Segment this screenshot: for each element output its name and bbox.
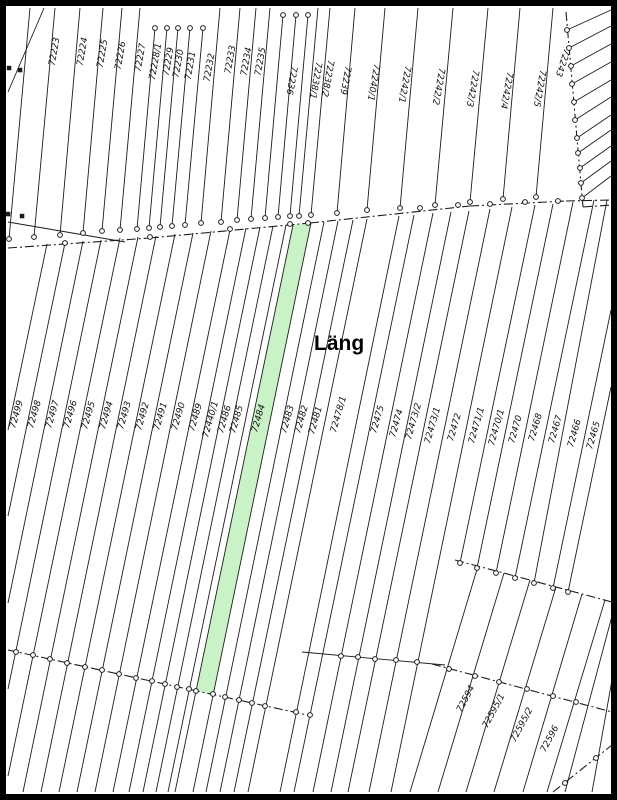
survey-point-circle [574, 700, 579, 705]
survey-point-circle [7, 237, 12, 242]
survey-point-circle [187, 687, 192, 692]
survey-point-circle [276, 215, 281, 220]
survey-point-circle [294, 710, 299, 715]
survey-point-circle [201, 26, 206, 31]
survey-point-circle [398, 206, 403, 211]
survey-point-circle [566, 590, 571, 595]
survey-point-circle [572, 100, 577, 105]
survey-point-square [6, 212, 11, 217]
survey-point-circle [468, 200, 473, 205]
survey-point-circle [158, 225, 163, 230]
survey-point-square [7, 66, 12, 71]
survey-point-circle [556, 199, 561, 204]
survey-point-circle [494, 571, 499, 576]
survey-point-circle [14, 650, 19, 655]
survey-point-circle [501, 197, 506, 202]
survey-point-circle [83, 665, 88, 670]
survey-point-circle [475, 566, 480, 571]
survey-point-circle [306, 221, 311, 226]
survey-point-circle [578, 166, 583, 171]
survey-point-circle [288, 214, 293, 219]
survey-point-circle [118, 228, 123, 233]
survey-point-circle [579, 181, 584, 186]
survey-point-circle [309, 213, 314, 218]
survey-point-circle [176, 26, 181, 31]
survey-point-circle [488, 202, 493, 207]
survey-point-circle [569, 64, 574, 69]
survey-point-circle [594, 756, 599, 761]
survey-point-circle [135, 227, 140, 232]
map-background [0, 0, 617, 800]
survey-point-circle [288, 222, 293, 227]
survey-point-circle [249, 217, 254, 222]
survey-point-circle [281, 13, 286, 18]
survey-point-circle [148, 235, 153, 240]
survey-point-circle [100, 668, 105, 673]
survey-point-circle [339, 654, 344, 659]
survey-point-circle [48, 657, 53, 662]
survey-point-circle [365, 208, 370, 213]
survey-point-circle [81, 231, 86, 236]
survey-point-circle [237, 698, 242, 703]
survey-point-circle [534, 195, 539, 200]
survey-point-circle [294, 13, 299, 18]
survey-point-circle [394, 658, 399, 663]
survey-point-circle [31, 653, 36, 658]
survey-point-circle [456, 203, 461, 208]
survey-point-circle [523, 200, 528, 205]
survey-point-circle [263, 216, 268, 221]
survey-point-circle [147, 226, 152, 231]
survey-point-circle [235, 218, 240, 223]
survey-point-circle [188, 26, 193, 31]
survey-point-circle [525, 687, 530, 692]
survey-point-circle [473, 674, 478, 679]
survey-point-circle [219, 220, 224, 225]
survey-point-circle [532, 581, 537, 586]
survey-point-circle [250, 701, 255, 706]
survey-point-circle [58, 233, 63, 238]
survey-point-square [18, 68, 23, 73]
survey-point-circle [551, 694, 556, 699]
survey-point-circle [497, 680, 502, 685]
survey-point-circle [263, 704, 268, 709]
survey-point-circle [570, 82, 575, 87]
survey-point-circle [32, 235, 37, 240]
survey-point-circle [63, 241, 68, 246]
survey-point-circle [228, 227, 233, 232]
survey-point-circle [117, 672, 122, 677]
survey-point-circle [418, 206, 423, 211]
survey-point-circle [150, 679, 155, 684]
cadastral-map: 722237222472225722267222772228/172229722… [0, 0, 617, 800]
survey-point-circle [194, 689, 199, 694]
survey-point-circle [65, 661, 70, 666]
survey-point-circle [175, 685, 180, 690]
survey-point-square [20, 214, 25, 219]
survey-point-circle [447, 667, 452, 672]
survey-point-circle [335, 211, 340, 216]
survey-point-circle [183, 223, 188, 228]
survey-point-circle [134, 676, 139, 681]
survey-point-circle [415, 660, 420, 665]
survey-point-circle [211, 692, 216, 697]
area-name-label: Läng [314, 332, 364, 355]
survey-point-circle [170, 224, 175, 229]
survey-point-circle [199, 221, 204, 226]
survey-point-circle [153, 26, 158, 31]
survey-point-circle [433, 203, 438, 208]
survey-point-circle [580, 196, 585, 201]
survey-point-circle [513, 576, 518, 581]
survey-point-circle [165, 26, 170, 31]
survey-point-circle [223, 695, 228, 700]
survey-point-circle [576, 151, 581, 156]
survey-point-circle [563, 781, 568, 786]
survey-point-circle [551, 586, 556, 591]
survey-point-circle [100, 229, 105, 234]
survey-point-circle [373, 657, 378, 662]
survey-point-circle [163, 682, 168, 687]
survey-point-circle [565, 28, 570, 33]
survey-point-circle [306, 13, 311, 18]
survey-point-circle [573, 118, 578, 123]
survey-point-circle [308, 713, 313, 718]
survey-point-circle [575, 136, 580, 141]
cadastral-map-viewport: 722237222472225722267222772228/172229722… [0, 0, 617, 800]
survey-point-circle [356, 655, 361, 660]
survey-point-circle [458, 561, 463, 566]
survey-point-circle [297, 214, 302, 219]
